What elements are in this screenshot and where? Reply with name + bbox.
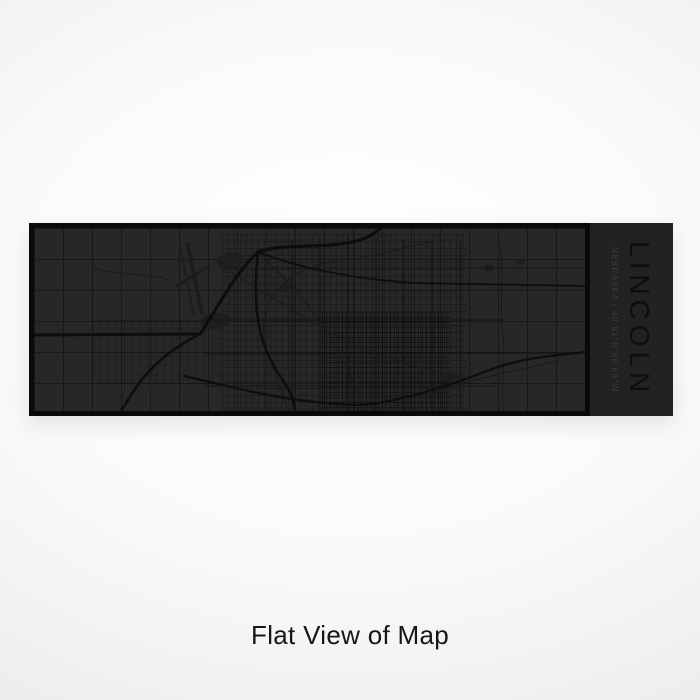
city-subtitle: NEBRASKA / 40.81°N 96.69°W bbox=[610, 247, 618, 393]
map-product-panel: LINCOLN NEBRASKA / 40.81°N 96.69°W bbox=[29, 223, 673, 416]
map-frame bbox=[29, 223, 590, 416]
map-canvas bbox=[34, 228, 585, 411]
caption: Flat View of Map bbox=[0, 620, 700, 651]
label-panel: LINCOLN NEBRASKA / 40.81°N 96.69°W bbox=[590, 223, 673, 416]
city-title: LINCOLN bbox=[625, 241, 653, 397]
map-roads-svg bbox=[34, 228, 585, 411]
airport-runways bbox=[176, 242, 210, 316]
lakes bbox=[199, 249, 525, 383]
city-arterials bbox=[204, 236, 585, 411]
